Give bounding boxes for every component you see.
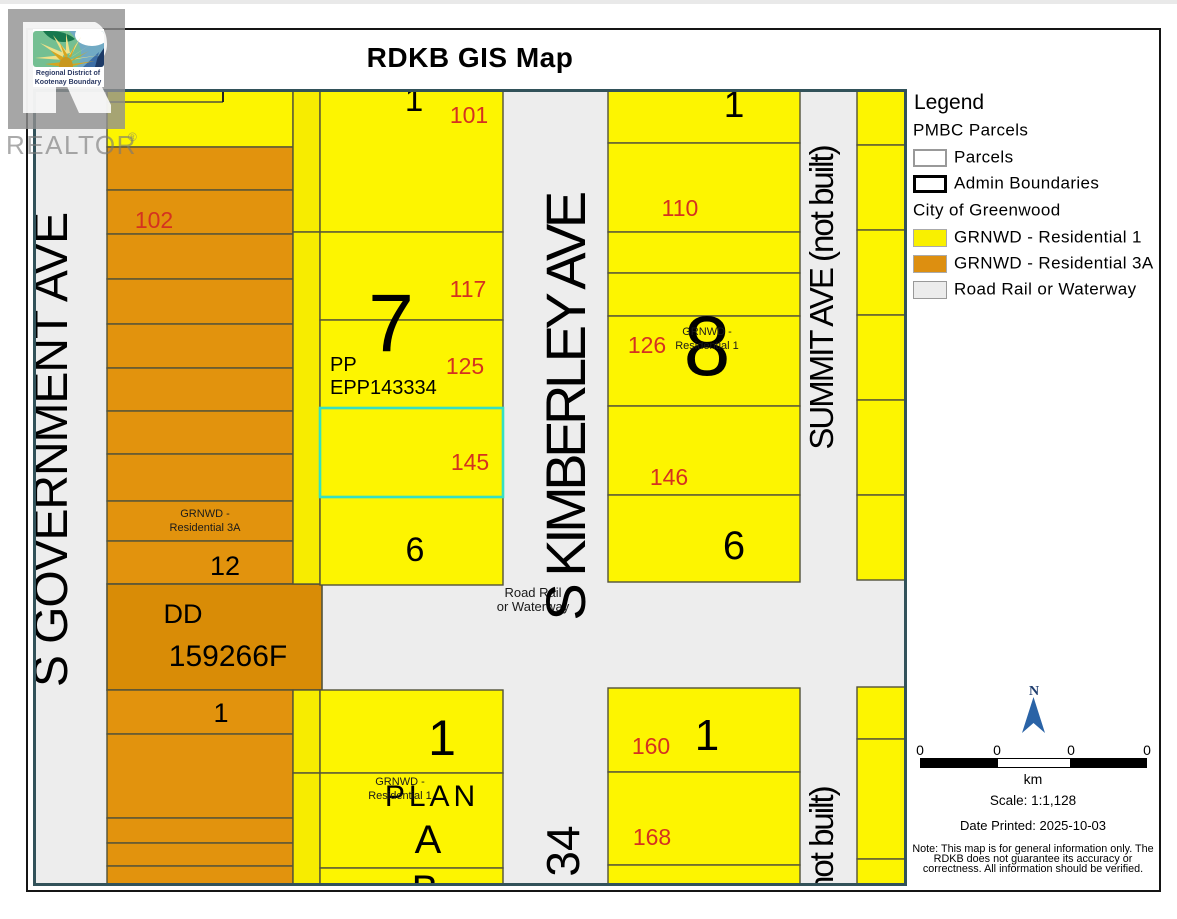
svg-text:6: 6 [406, 531, 425, 569]
svg-text:126: 126 [628, 332, 666, 358]
svg-text:GRNWD -: GRNWD - [180, 508, 230, 520]
svg-text:SUMMIT AVE (not built): SUMMIT AVE (not built) [803, 146, 840, 449]
svg-text:Regional District of: Regional District of [36, 70, 101, 77]
svg-text:DD: DD [164, 599, 203, 629]
svg-text:SUMMIT AVE (not built): SUMMIT AVE (not built) [803, 787, 840, 886]
svg-text:Kootenay Boundary: Kootenay Boundary [35, 79, 102, 86]
svg-text:102: 102 [135, 207, 173, 233]
svg-text:7: 7 [368, 278, 414, 369]
svg-text:GRNWD -: GRNWD - [682, 326, 732, 338]
svg-text:PP: PP [330, 354, 357, 376]
svg-text:REALTOR: REALTOR [6, 130, 137, 160]
svg-text:159266F: 159266F [169, 640, 287, 673]
svg-text:101: 101 [450, 102, 488, 128]
svg-text:1: 1 [213, 698, 228, 728]
svg-text:12: 12 [210, 551, 240, 581]
svg-text:1: 1 [428, 710, 456, 766]
svg-text:125: 125 [446, 353, 484, 379]
svg-text:GRNWD -: GRNWD - [375, 776, 425, 788]
svg-text:6: 6 [723, 524, 745, 568]
svg-text:Residential 1: Residential 1 [675, 340, 739, 352]
svg-text:A: A [415, 818, 442, 862]
svg-text:1: 1 [405, 89, 423, 118]
svg-text:1: 1 [695, 711, 719, 760]
svg-text:145: 145 [451, 449, 489, 475]
svg-text:1: 1 [724, 89, 745, 125]
svg-text:110: 110 [662, 195, 699, 221]
svg-text:EPP143334: EPP143334 [330, 377, 437, 399]
svg-text:117: 117 [450, 276, 487, 302]
svg-text:160: 160 [632, 733, 670, 759]
svg-text:Residential 1: Residential 1 [368, 790, 432, 802]
svg-text:168: 168 [633, 824, 671, 850]
svg-text:S GOVERNMENT AVE: S GOVERNMENT AVE [33, 213, 78, 687]
svg-text:®: ® [128, 130, 137, 144]
svg-text:34: 34 [537, 825, 589, 876]
svg-text:146: 146 [650, 464, 688, 490]
svg-text:Residential 3A: Residential 3A [170, 522, 242, 534]
svg-text:S KIMBERLEY AVE: S KIMBERLEY AVE [534, 193, 597, 620]
